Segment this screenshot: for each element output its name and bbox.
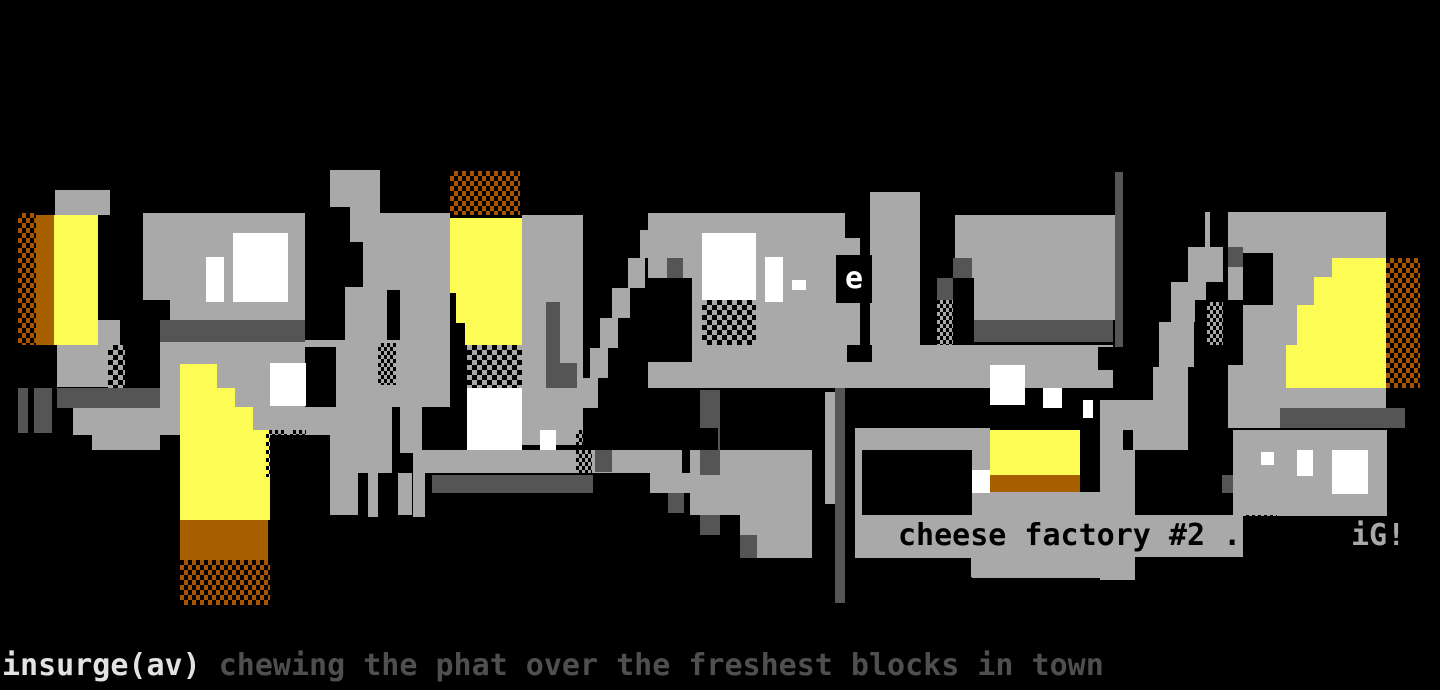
art-block-d [18, 388, 28, 433]
art-block-g [73, 408, 160, 435]
art-block-k [847, 345, 872, 362]
art-block-o [180, 520, 268, 560]
cheese-factory-caption: cheese factory #2 . [898, 518, 1241, 554]
group-signature: iG! [1351, 518, 1405, 554]
art-block-g [650, 473, 690, 493]
art-block-y [180, 388, 235, 407]
ansi-art-canvas: e cheese factory #2 . iG! insurge(av) ch… [0, 0, 1440, 690]
art-block-w [233, 233, 288, 302]
art-block-g [612, 288, 630, 318]
art-block-k [955, 278, 974, 345]
art-block-w [1043, 388, 1062, 408]
art-block-o [36, 215, 54, 345]
art-block-bdg [1243, 515, 1277, 559]
art-block-g [1100, 400, 1188, 450]
art-block-w [765, 257, 783, 302]
art-block-bdg [128, 320, 142, 345]
art-block-d [558, 363, 577, 388]
credit-tagline: chewing the phat over the freshest block… [201, 648, 1104, 683]
art-block-k [612, 473, 650, 493]
art-block-och [180, 560, 270, 605]
art-block-w [467, 388, 522, 450]
art-block-d [668, 493, 684, 513]
art-block-d [432, 475, 593, 493]
art-block-g [345, 287, 387, 345]
art-block-g [955, 215, 1117, 320]
art-block-g [330, 170, 380, 207]
art-block-g [870, 192, 920, 345]
art-block-k [1210, 212, 1228, 247]
art-block-g [368, 473, 378, 517]
art-block-d [1228, 247, 1243, 267]
art-block-k [845, 213, 862, 238]
art-block-w [1297, 450, 1313, 476]
art-block-bdg [378, 343, 396, 385]
art-block-w [206, 257, 224, 302]
art-block-k [862, 450, 972, 515]
art-block-y [1286, 345, 1386, 388]
art-block-w [1083, 400, 1093, 418]
art-block-bdg [266, 430, 287, 477]
art-block-d [595, 450, 612, 472]
art-block-k [630, 407, 675, 428]
art-block-k [1188, 403, 1225, 450]
art-block-y [990, 430, 1080, 475]
art-block-d [57, 388, 160, 408]
art-block-och [450, 171, 520, 215]
art-block-w [792, 280, 806, 290]
art-block-chk [108, 345, 125, 388]
art-block-w [270, 363, 306, 406]
art-block-k [143, 300, 170, 320]
art-block-gdb [937, 300, 953, 345]
art-block-chk [467, 345, 522, 388]
art-block-bdg [648, 303, 665, 345]
art-block-w [1332, 450, 1368, 494]
art-block-g [92, 435, 160, 450]
letter-e-inverse-cell: e [836, 255, 872, 303]
art-block-w [540, 430, 556, 450]
art-block-o [990, 475, 1080, 492]
art-block-g [1159, 322, 1194, 367]
art-block-g [57, 345, 108, 387]
credit-line: insurge(av) chewing the phat over the fr… [2, 648, 1104, 684]
art-block-k [422, 407, 450, 450]
art-block-g [1188, 247, 1223, 282]
art-block-g [825, 392, 835, 504]
art-block-k [305, 347, 336, 407]
art-block-d [740, 535, 757, 558]
art-block-d [953, 258, 972, 278]
art-block-d [34, 388, 52, 433]
art-block-g [330, 407, 392, 473]
art-block-g [98, 320, 120, 345]
art-block-w [990, 365, 1025, 405]
art-block-y [180, 364, 217, 388]
art-block-d [160, 320, 305, 342]
art-block-d [835, 388, 845, 603]
art-block-d [1115, 172, 1123, 357]
art-block-bdg [290, 430, 306, 477]
art-block-d [1222, 475, 1233, 493]
art-block-chk [702, 300, 756, 345]
art-block-k [1098, 347, 1123, 370]
art-block-g [600, 318, 618, 348]
art-block-och [1386, 258, 1420, 388]
art-block-y [465, 323, 522, 345]
art-block-y [180, 430, 270, 520]
art-block-w [702, 233, 756, 300]
art-block-g [330, 473, 358, 515]
art-block-d [667, 258, 683, 278]
art-block-k [1123, 430, 1133, 450]
art-block-d [1280, 408, 1405, 428]
art-block-k [1135, 450, 1188, 475]
art-block-d [700, 515, 720, 535]
art-block-ka [855, 393, 988, 428]
art-block-g [425, 450, 682, 473]
art-block-g [380, 213, 450, 273]
art-block-g [580, 378, 598, 408]
art-block-d [937, 278, 953, 300]
art-block-w [972, 470, 990, 493]
art-block-y [54, 215, 98, 345]
art-block-g [640, 230, 653, 258]
art-block-y [450, 218, 522, 293]
art-block-w [1261, 452, 1274, 465]
art-block-g [350, 207, 380, 242]
art-block-gdb [1207, 302, 1223, 345]
art-block-bdg [576, 430, 592, 475]
art-block-g [55, 190, 110, 215]
art-block-k [652, 428, 718, 450]
art-block-g [628, 258, 645, 288]
art-block-g [860, 345, 1113, 388]
art-block-g [590, 348, 608, 378]
art-block-d [973, 320, 1113, 342]
art-block-y [456, 293, 522, 323]
art-block-g [398, 473, 412, 515]
artist-name: insurge(av) [2, 648, 201, 683]
art-block-y [180, 407, 253, 430]
art-block-k [1243, 253, 1273, 305]
art-block-och [18, 213, 36, 345]
